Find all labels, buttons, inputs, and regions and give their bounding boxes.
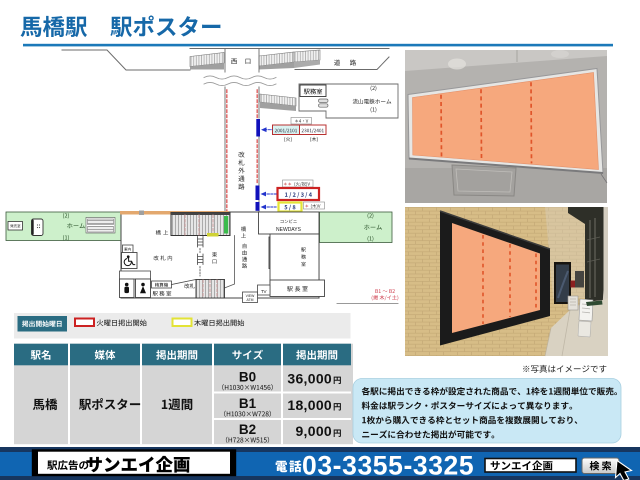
svg-text:ATM: ATM	[247, 298, 254, 302]
svg-text:03-3355-3325: 03-3355-3325	[302, 451, 474, 480]
svg-text:B0: B0	[239, 369, 256, 384]
svg-text:B1: B1	[239, 396, 257, 411]
svg-text:9,000: 9,000	[295, 423, 332, 439]
svg-text:36,000: 36,000	[287, 370, 332, 386]
svg-text:18,000: 18,000	[287, 397, 332, 413]
svg-text:NEWDAYS: NEWDAYS	[276, 227, 302, 233]
svg-text:B2: B2	[239, 422, 256, 437]
svg-text:TV: TV	[261, 289, 267, 294]
